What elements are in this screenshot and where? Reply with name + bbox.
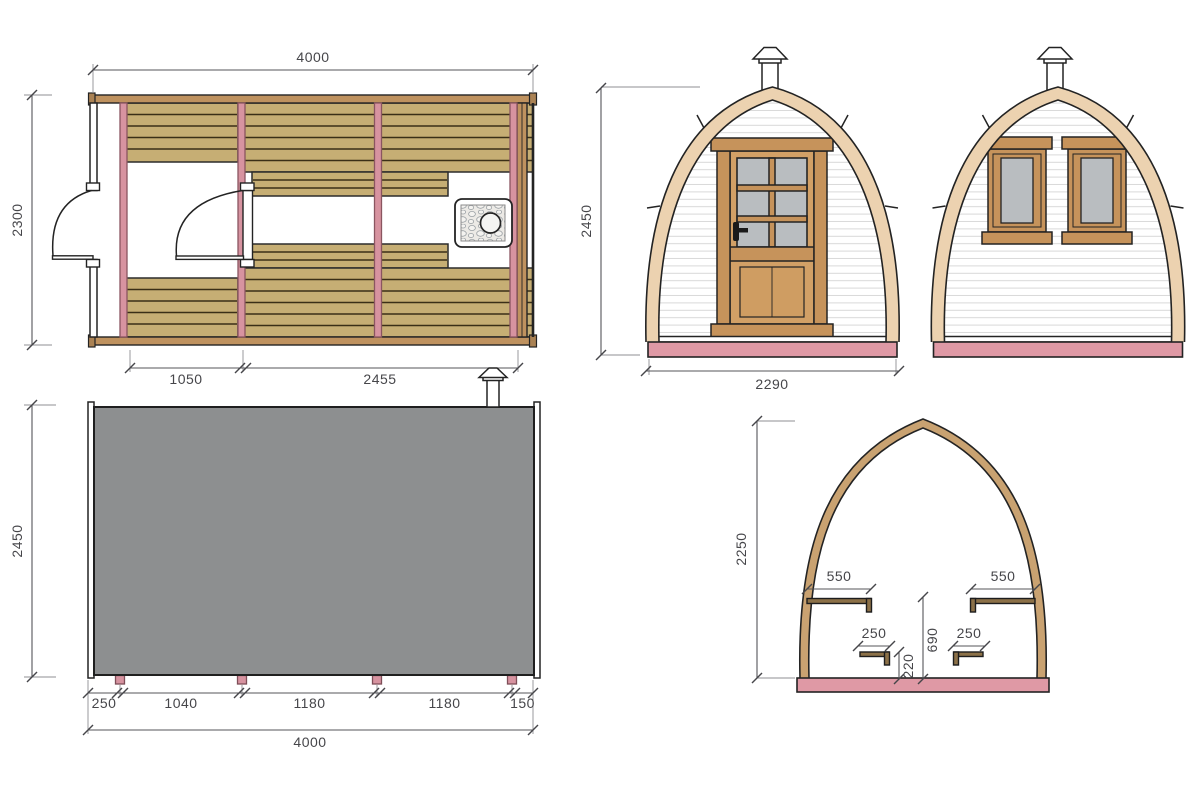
dim-label-seg: 1180 (428, 695, 460, 711)
front-door-mid-rail (730, 247, 814, 261)
front-door-stile-right (814, 151, 827, 324)
dim-label-seg: 1040 (164, 695, 197, 711)
exterior-door-leaf (53, 256, 94, 259)
foundation-foot (508, 676, 517, 685)
stove-heater (455, 199, 512, 247)
window (1062, 137, 1132, 244)
rear-wall-siding (944, 100, 1171, 342)
dim-label-seg: 150 (510, 695, 535, 711)
front-dimension-width: 2290 (641, 359, 904, 392)
front-door-sill (711, 324, 833, 337)
window-sill (1062, 232, 1132, 244)
sauna-pod-drawing: 4000 2300 1050 2455 (0, 0, 1200, 800)
section-dimension-height: 2250 (733, 416, 795, 683)
dim-label-bay-right: 2455 (363, 371, 396, 387)
door-handle-icon (733, 222, 739, 241)
rear-elevation-view (931, 48, 1184, 358)
plan-column (120, 103, 127, 337)
interior-door-arc (176, 191, 242, 257)
dim-label-plan-width: 4000 (296, 49, 329, 65)
rear-floor-edge (940, 337, 1176, 343)
side-dimension-height: 2450 (9, 400, 56, 682)
foundation-foot (116, 676, 125, 685)
dim-label-bench-height: 690 (924, 628, 940, 653)
plan-bench-extension-bottom (252, 244, 448, 268)
cross-section-view: 2250 550 550 250 250 690 (733, 416, 1049, 692)
window (982, 137, 1052, 244)
rear-pink-base (934, 342, 1183, 357)
dim-label-side-length: 4000 (293, 734, 326, 750)
exterior-door-swing (53, 183, 100, 267)
side-dimension-feet: 250 1040 1180 1180 150 (83, 680, 538, 734)
side-elevation-view: 2450 250 1040 1180 1180 150 4000 (9, 368, 540, 750)
plan-bench-band-bottom-left (126, 278, 238, 337)
dim-label-section-height: 2250 (733, 532, 749, 565)
dim-label-bay-left: 1050 (169, 371, 202, 387)
dim-label-step: 250 (862, 625, 887, 641)
front-pink-base (648, 342, 897, 357)
plan-dimension-bays: 1050 2455 (125, 350, 523, 387)
dim-label-seg: 1180 (293, 695, 325, 711)
window-sill (982, 232, 1052, 244)
side-dimension-length: 4000 (83, 725, 538, 750)
front-door-header (711, 138, 833, 151)
interior-door-leaf (176, 256, 244, 259)
foundation-foot (373, 676, 382, 685)
front-door-stile-left (717, 151, 730, 324)
foundation-foot (238, 676, 247, 685)
exterior-door-arc (53, 191, 92, 256)
dim-label-step-height: 220 (900, 654, 916, 679)
plan-top-wall (93, 95, 533, 103)
dim-label-front-height: 2450 (578, 204, 594, 237)
dim-label-plan-depth: 2300 (9, 203, 25, 236)
stove-chimney-outlet (481, 213, 501, 233)
plan-dimension-depth: 2300 (9, 90, 52, 350)
dim-label-bench: 550 (827, 568, 852, 584)
plan-dimension-width: 4000 (88, 49, 538, 93)
plan-left-wall-lower (90, 260, 97, 338)
interior-door-swing (176, 183, 254, 267)
section-floor-slab (797, 678, 1049, 692)
dim-label-front-width: 2290 (755, 376, 788, 392)
dim-label-side-height: 2450 (9, 524, 25, 557)
side-wall-panel (94, 407, 534, 675)
floor-plan-view: 4000 2300 1050 2455 (9, 49, 538, 387)
plan-bench-band-top-left (126, 103, 238, 162)
plan-left-wall-upper (90, 103, 97, 191)
dim-label-bench: 550 (991, 568, 1016, 584)
dim-label-step: 250 (957, 625, 982, 641)
front-door (711, 138, 833, 337)
plan-bench-extension-top (252, 172, 448, 196)
dim-label-seg: 250 (92, 695, 117, 711)
chimney-icon (479, 368, 507, 407)
interior-door-frame (243, 191, 253, 260)
technical-drawing-sheet: 4000 2300 1050 2455 (0, 0, 1200, 800)
plan-bottom-wall (93, 337, 533, 345)
front-floor-edge (654, 337, 891, 343)
plan-column (375, 103, 382, 337)
front-elevation-view: 2450 2290 (578, 48, 904, 393)
